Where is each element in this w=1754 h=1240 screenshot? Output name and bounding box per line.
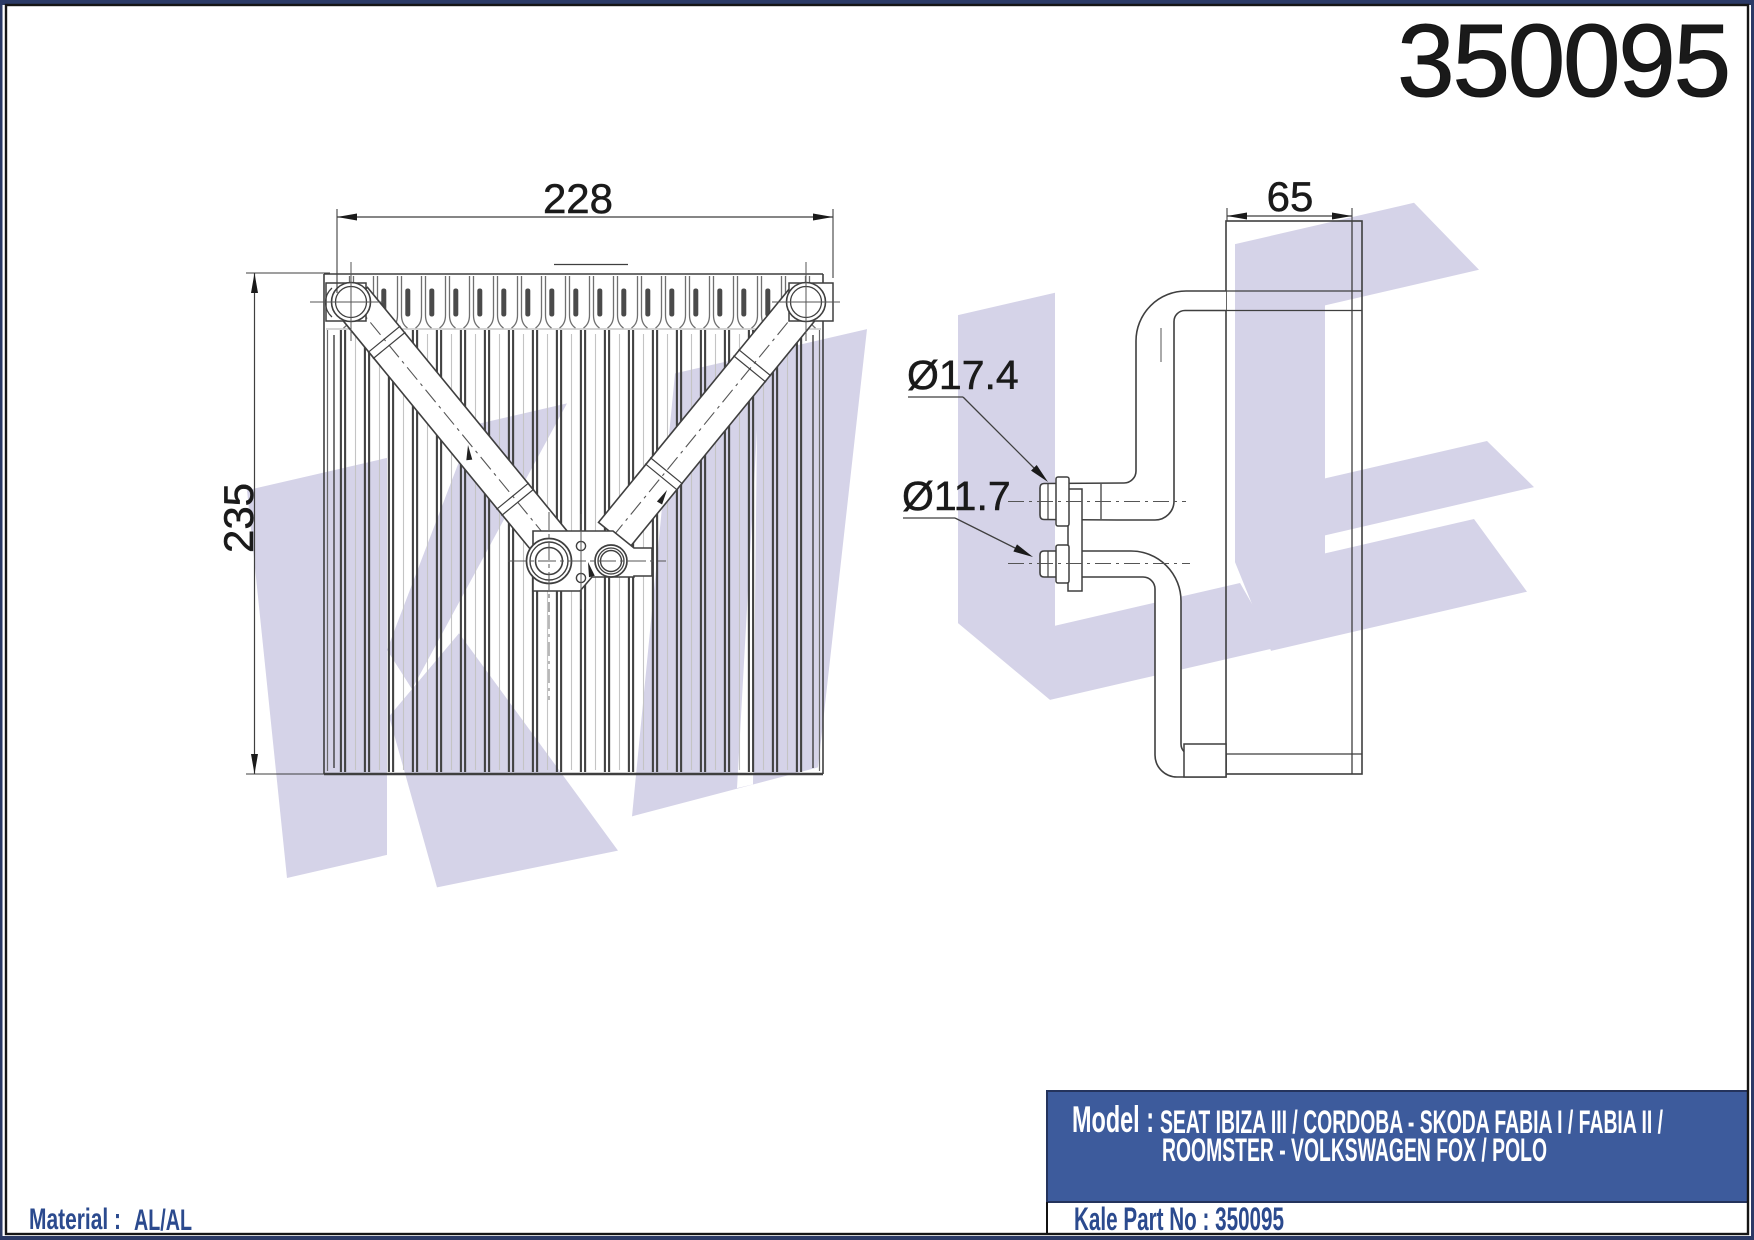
svg-text:65: 65 [1267,173,1314,220]
svg-text:Material :: Material : [29,1203,121,1236]
svg-text:228: 228 [543,175,613,222]
svg-text:Ø17.4: Ø17.4 [907,352,1019,398]
svg-text:Kale Part No : 350095: Kale Part No : 350095 [1074,1201,1284,1237]
svg-text:Ø11.7: Ø11.7 [902,473,1011,519]
svg-text:350095: 350095 [1397,3,1729,118]
svg-text:AL/AL: AL/AL [134,1204,192,1237]
svg-text:Model :: Model : [1072,1099,1154,1140]
svg-text:235: 235 [215,483,262,553]
svg-text:ROOMSTER - VOLKSWAGEN FOX / PO: ROOMSTER - VOLKSWAGEN FOX / POLO [1162,1132,1547,1168]
